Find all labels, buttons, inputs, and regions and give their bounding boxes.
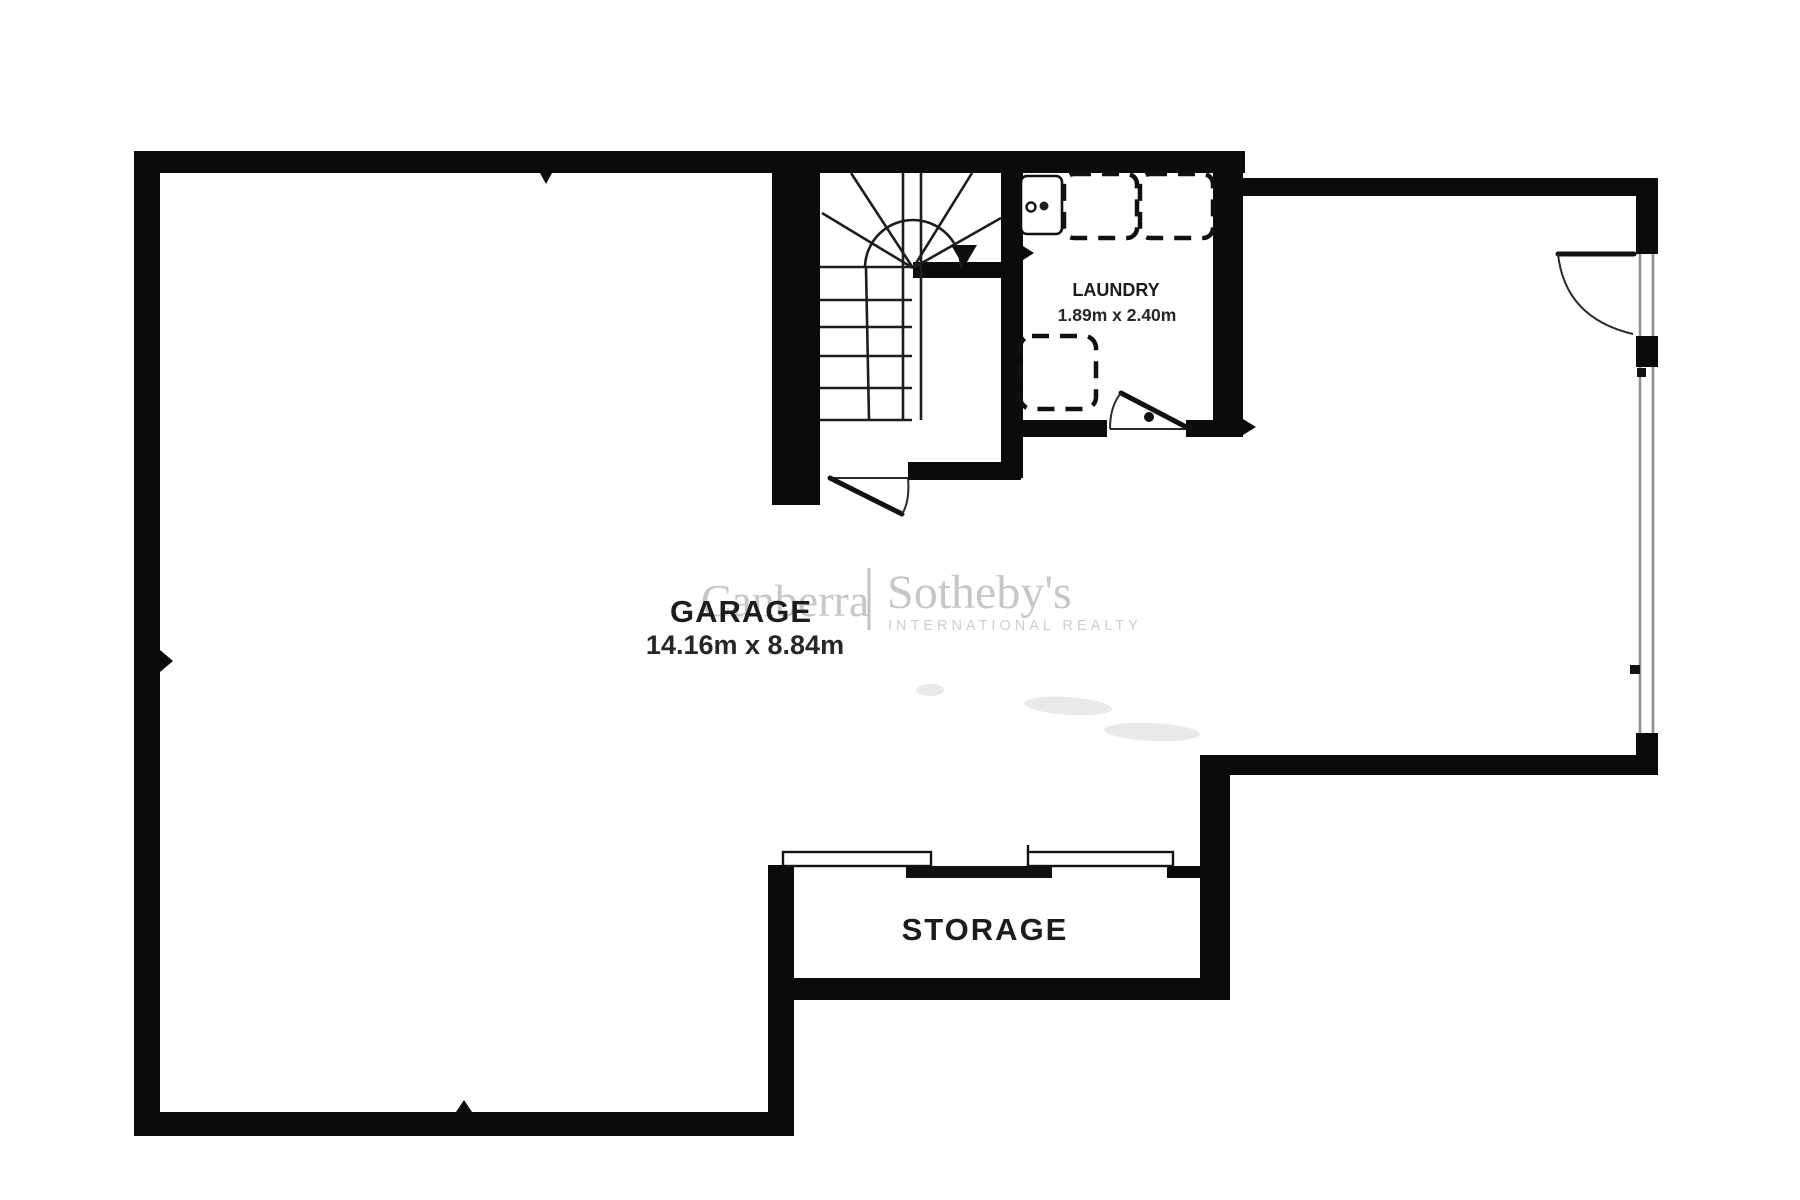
tick-mark xyxy=(456,1100,472,1112)
wall-right-mid xyxy=(1636,336,1658,367)
tick-mark xyxy=(540,173,552,184)
tick-mark xyxy=(1243,419,1256,435)
smudge-mark xyxy=(1104,721,1201,744)
garage-label: GARAGE xyxy=(670,594,812,629)
wall-stair-bottom xyxy=(908,462,1021,480)
wall-left xyxy=(134,151,160,1136)
watermark-smudges xyxy=(916,684,1200,743)
laundry-door-swing-arc xyxy=(1110,393,1121,429)
garage-dimensions: 14.16m x 8.84m xyxy=(646,630,844,660)
storage-sliding-doors xyxy=(783,845,1173,878)
sliding-door-panel xyxy=(1028,852,1173,866)
wall-stair-winder-stub xyxy=(913,262,1005,278)
laundry-door-leaf xyxy=(1121,393,1190,429)
wall-storage-bottom xyxy=(768,978,1230,1000)
dryer-outline xyxy=(1140,174,1213,238)
wall-right-lower xyxy=(1636,733,1658,775)
wall-storage-door-jamb xyxy=(1167,866,1206,878)
watermark-right-text: Sotheby's xyxy=(887,566,1072,619)
sliding-door-panel-filled xyxy=(906,866,1052,878)
wall-top xyxy=(134,151,1245,173)
washer-outline xyxy=(1064,174,1137,238)
wall-bottom xyxy=(134,1112,794,1136)
tap-icon xyxy=(1040,202,1049,211)
stair-handrail-line xyxy=(866,268,869,420)
tick-mark xyxy=(1023,246,1034,260)
tick-mark xyxy=(160,650,173,672)
storage-label: STORAGE xyxy=(902,912,1069,947)
stair-door-swing-arc xyxy=(902,478,908,514)
window-end-marker xyxy=(1630,665,1640,674)
staircase xyxy=(820,173,1001,420)
stair-winder-tread xyxy=(913,218,1001,268)
laundry-dimensions: 1.89m x 2.40m xyxy=(1058,305,1177,325)
floor-plan-page: Canberra Sotheby's INTERNATIONAL REALTY xyxy=(0,0,1800,1200)
appliance-outline xyxy=(1020,336,1096,409)
window-end-marker xyxy=(1637,368,1646,377)
laundry-label: LAUNDRY xyxy=(1072,280,1159,300)
wall-top-right xyxy=(1243,178,1658,196)
entry-door-swing-arc xyxy=(1558,254,1633,334)
wall-stair-left xyxy=(772,173,820,505)
wall-laundry-bottom-left xyxy=(1023,420,1107,437)
sliding-door-panel xyxy=(783,852,931,866)
wall-lower-right xyxy=(1200,755,1658,775)
smudge-mark xyxy=(1023,694,1112,718)
watermark-subtitle: INTERNATIONAL REALTY xyxy=(888,618,1142,634)
wall-garage-step xyxy=(768,865,794,1136)
wall-laundry-right xyxy=(1213,151,1243,437)
garage-window xyxy=(1630,254,1653,733)
laundry-door-stop-dot xyxy=(1144,412,1154,422)
smudge-mark xyxy=(916,684,944,696)
stair-door-leaf xyxy=(830,478,902,514)
floor-plan-drawing: Canberra Sotheby's INTERNATIONAL REALTY xyxy=(0,0,1800,1200)
stair-handrail-arc xyxy=(865,220,961,268)
